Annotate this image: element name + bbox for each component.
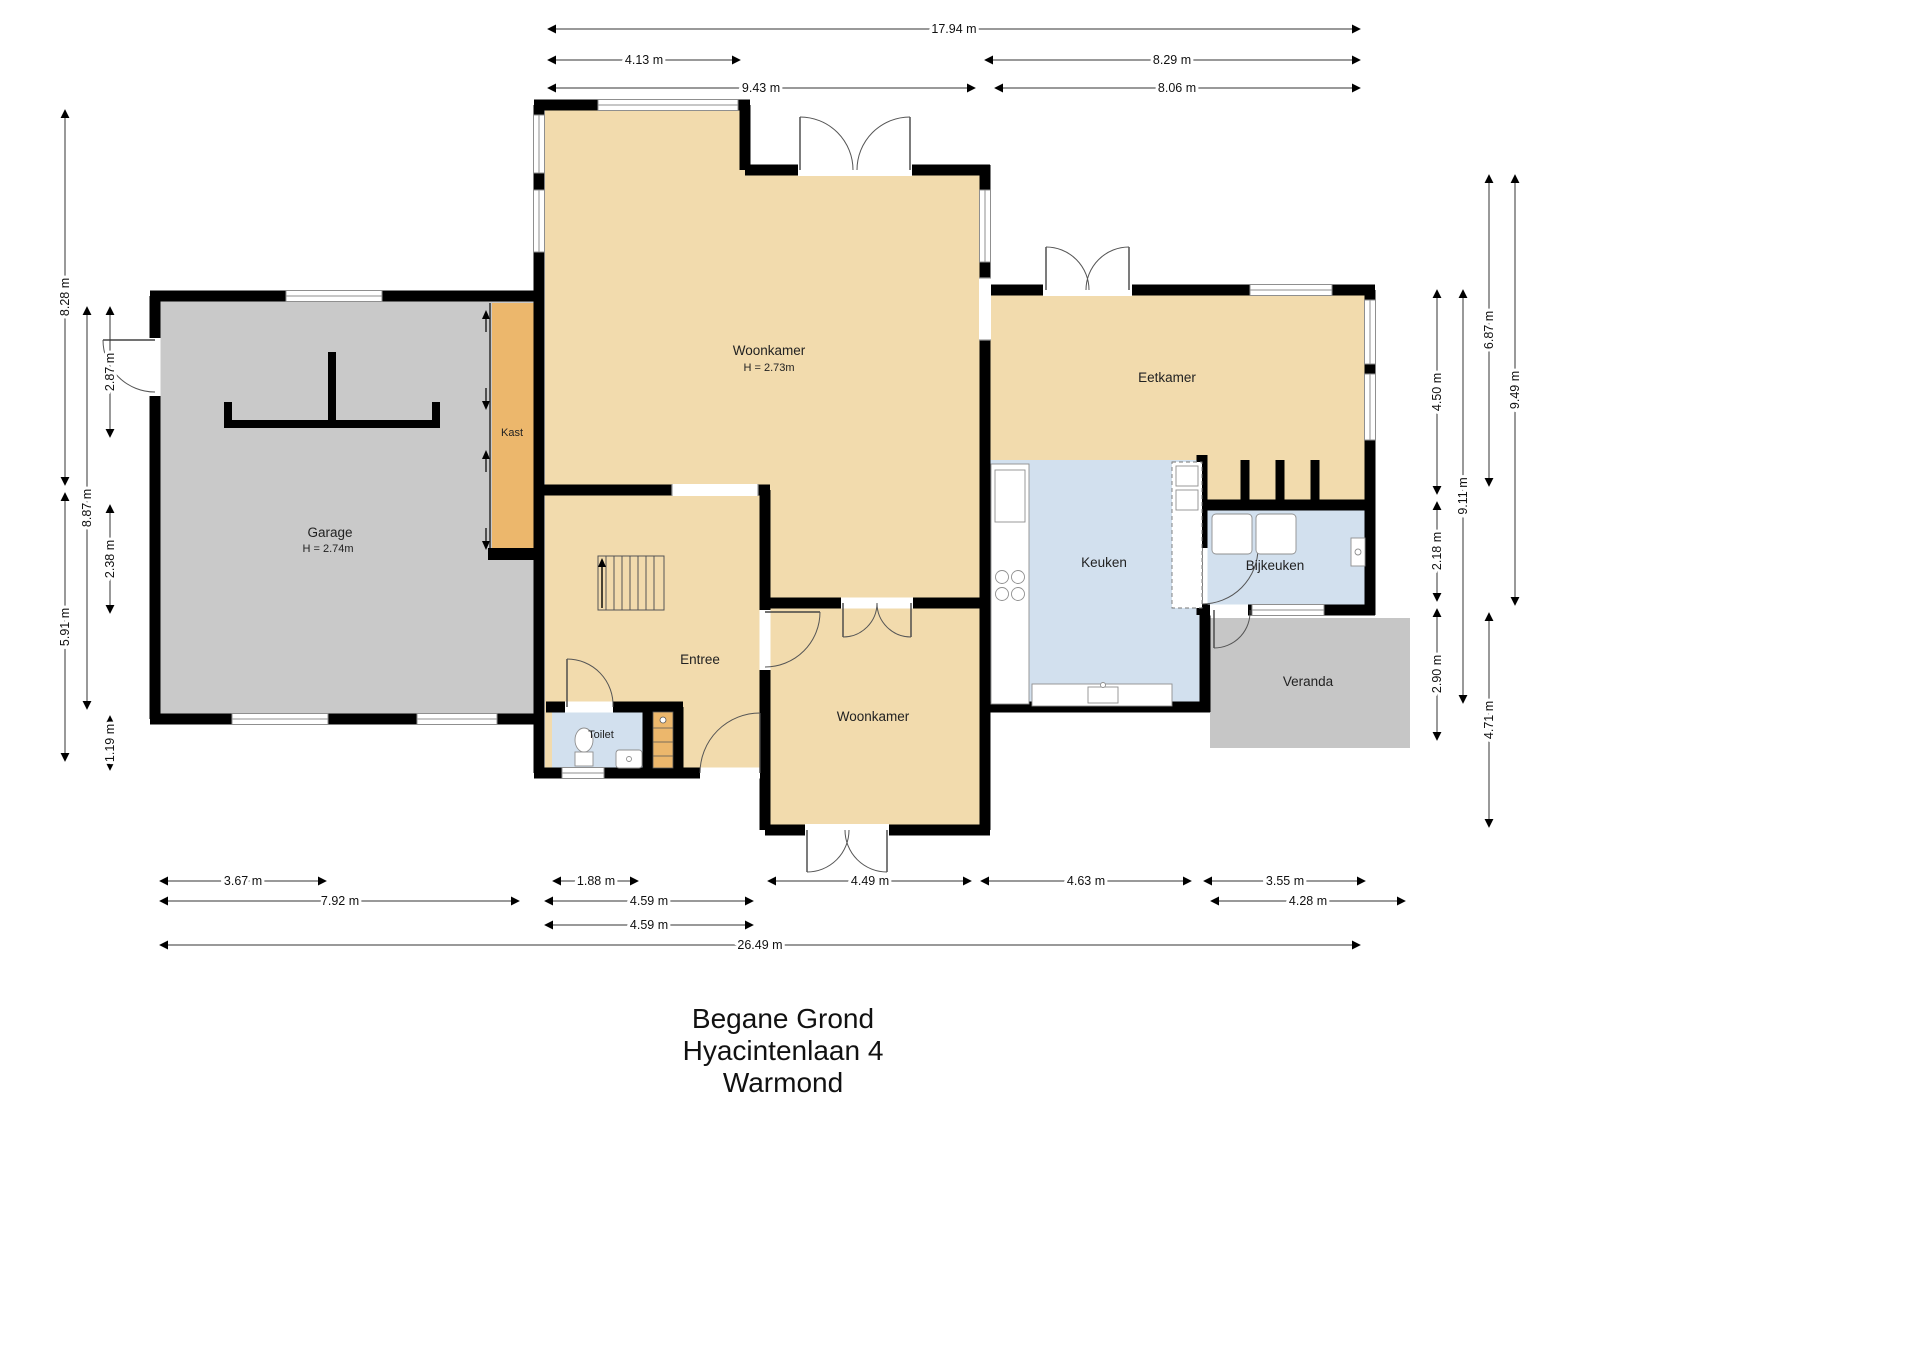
svg-text:1.19 m: 1.19 m <box>103 724 117 762</box>
double-door-woonkamer2-bottom <box>805 824 889 872</box>
svg-text:9.11 m: 9.11 m <box>1456 477 1470 514</box>
room-label-veranda: Veranda <box>1283 674 1334 689</box>
svg-text:4.63 m: 4.63 m <box>1067 874 1105 888</box>
window-left-wall-2 <box>534 190 545 252</box>
svg-text:4.71 m: 4.71 m <box>1482 701 1496 739</box>
window-eetkamer-right-1 <box>1365 300 1376 364</box>
window-eetkamer-top <box>1250 285 1332 296</box>
title-floor: Begane Grond <box>692 1003 874 1034</box>
room-label-kast: Kast <box>501 427 523 439</box>
svg-text:4.49 m: 4.49 m <box>851 874 889 888</box>
svg-text:4.59 m: 4.59 m <box>630 918 668 932</box>
svg-text:3.67 m: 3.67 m <box>224 874 262 888</box>
dim-left-5-91: 5.91 m <box>58 493 72 761</box>
floorplan-svg: Woonkamer H = 2.73m Garage H = 2.74m Kas… <box>0 0 1920 1358</box>
svg-text:4.50 m: 4.50 m <box>1430 373 1444 411</box>
title-address: Hyacintenlaan 4 <box>683 1035 884 1066</box>
svg-text:4.28 m: 4.28 m <box>1289 894 1327 908</box>
dim-right-4-71: 4.71 m <box>1482 613 1496 827</box>
window-left-wall-1 <box>534 115 545 173</box>
svg-text:4.13 m: 4.13 m <box>625 53 663 67</box>
dim-right-6-87: 6.87 m <box>1482 175 1496 486</box>
room-label-eetkamer: Eetkamer <box>1138 370 1196 385</box>
svg-text:1.88 m: 1.88 m <box>577 874 615 888</box>
kast-bottom-cap <box>488 548 538 560</box>
dim-bottom-26-49: 26.49 m <box>160 938 1360 952</box>
dim-top-8-06: 8.06 m <box>995 81 1360 95</box>
svg-text:17.94 m: 17.94 m <box>931 22 976 36</box>
keuken-counter-bottom-sink <box>1032 683 1172 707</box>
floorplan-page: Woonkamer H = 2.73m Garage H = 2.74m Kas… <box>0 0 1920 1358</box>
dim-bottom-4-63: 4.63 m <box>981 874 1191 888</box>
dim-top-9-43: 9.43 m <box>548 81 975 95</box>
room-label-bijkeuken: Bijkeuken <box>1246 558 1305 573</box>
title-city: Warmond <box>723 1067 843 1098</box>
room-label-toilet: Toilet <box>588 729 614 741</box>
dim-bottom-4-59-b: 4.59 m <box>545 918 753 932</box>
svg-text:4.59 m: 4.59 m <box>630 894 668 908</box>
window-toilet-bottom <box>562 768 604 779</box>
room-label-woonkamer1: Woonkamer <box>733 343 806 358</box>
dim-top-4-13: 4.13 m <box>548 53 740 67</box>
dim-bottom-4-49: 4.49 m <box>768 874 971 888</box>
dim-bottom-4-28: 4.28 m <box>1211 894 1405 908</box>
dim-bottom-4-59-a: 4.59 m <box>545 894 753 908</box>
svg-text:9.43 m: 9.43 m <box>742 81 780 95</box>
opening-entree-woonkamer <box>672 484 758 496</box>
svg-text:8.06 m: 8.06 m <box>1158 81 1196 95</box>
svg-text:7.92 m: 7.92 m <box>321 894 359 908</box>
svg-text:26.49 m: 26.49 m <box>737 938 782 952</box>
svg-text:2.90 m: 2.90 m <box>1430 655 1444 693</box>
dim-right-9-11: 9.11 m <box>1456 290 1470 703</box>
svg-text:8.29 m: 8.29 m <box>1153 53 1191 67</box>
dim-bottom-1-88: 1.88 m <box>553 874 638 888</box>
double-door-eetkamer-top <box>1043 247 1132 296</box>
window-garage-top <box>286 291 382 302</box>
window-top-wall <box>598 100 738 111</box>
dim-left-1-19: 1.19 m <box>103 716 117 770</box>
dim-left-8-28: 8.28 m <box>58 110 72 485</box>
dim-bottom-3-55: 3.55 m <box>1204 874 1365 888</box>
svg-text:2.38 m: 2.38 m <box>103 540 117 578</box>
room-garage <box>155 296 534 719</box>
window-bijkeuken-bottom <box>1252 605 1324 616</box>
dim-top-17-94: 17.94 m <box>548 22 1360 36</box>
window-right-upper <box>980 190 991 262</box>
dim-right-2-18: 2.18 m <box>1430 502 1444 601</box>
svg-text:6.87 m: 6.87 m <box>1482 311 1496 349</box>
opening-woonkamer-eetkamer <box>979 278 991 340</box>
dim-right-4-50: 4.50 m <box>1430 290 1444 494</box>
dim-right-9-49: 9.49 m <box>1508 175 1522 605</box>
dim-top-8-29: 8.29 m <box>985 53 1360 67</box>
dim-left-2-87: 2.87 m <box>103 307 117 437</box>
window-garage-bottom-2 <box>417 714 497 725</box>
room-label-woonkamer2: Woonkamer <box>837 709 910 724</box>
svg-text:2.18 m: 2.18 m <box>1430 532 1444 570</box>
room-label-entree: Entree <box>680 652 720 667</box>
room-height-garage: H = 2.74m <box>302 543 353 555</box>
meterkast <box>653 712 673 768</box>
svg-text:9.49 m: 9.49 m <box>1508 371 1522 409</box>
svg-text:2.87 m: 2.87 m <box>103 353 117 391</box>
svg-text:5.91 m: 5.91 m <box>58 608 72 646</box>
dim-left-2-38: 2.38 m <box>103 505 117 613</box>
svg-text:8.87 m: 8.87 m <box>80 489 94 527</box>
room-label-keuken: Keuken <box>1081 555 1127 570</box>
svg-text:8.28 m: 8.28 m <box>58 278 72 316</box>
room-height-woonkamer1: H = 2.73m <box>743 362 794 374</box>
keuken-counter-left <box>991 464 1029 704</box>
double-door-woonkamer-top <box>798 117 912 176</box>
room-label-garage: Garage <box>307 525 352 540</box>
svg-text:3.55 m: 3.55 m <box>1266 874 1304 888</box>
dim-bottom-3-67: 3.67 m <box>160 874 326 888</box>
window-garage-bottom-1 <box>232 714 328 725</box>
keuken-counter-right-dashed <box>1172 462 1202 608</box>
window-eetkamer-right-2 <box>1365 374 1376 440</box>
dim-right-2-90: 2.90 m <box>1430 609 1444 740</box>
dim-left-8-87: 8.87 m <box>80 307 94 709</box>
dim-bottom-7-92: 7.92 m <box>160 894 519 908</box>
